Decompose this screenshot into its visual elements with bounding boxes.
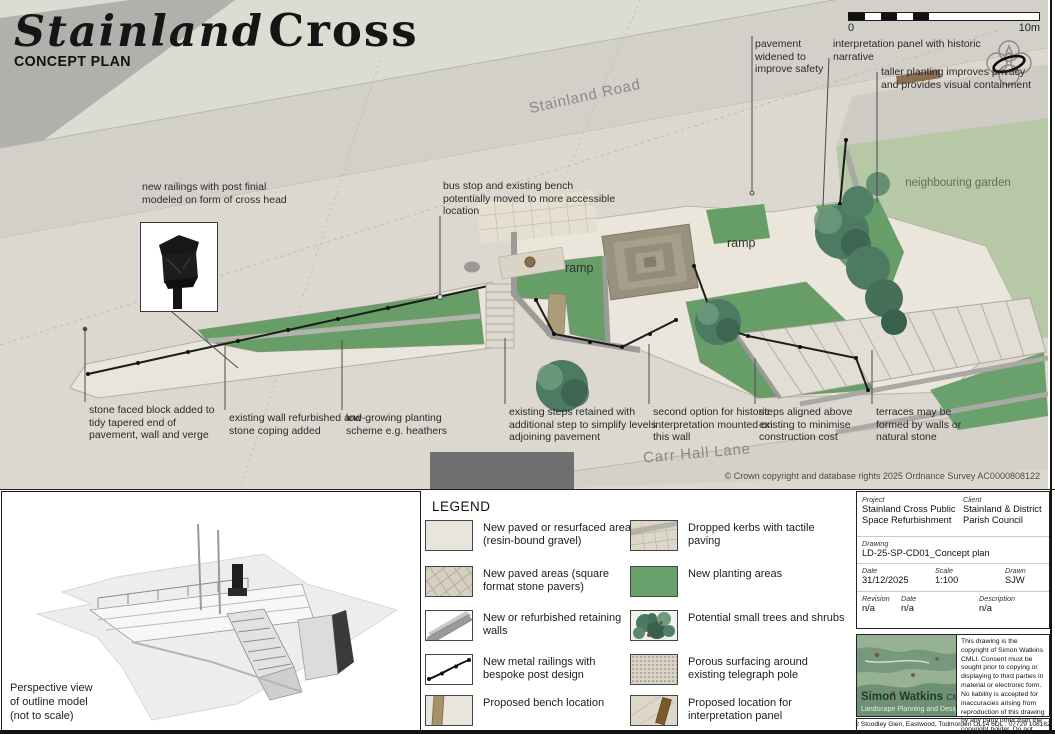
dropped-kerb-swatch: [630, 520, 678, 551]
neighbouring-garden-label: neighbouring garden: [903, 176, 1013, 190]
scale-label: Scale: [935, 566, 995, 575]
annotation-steps-aligned: steps aligned above existing to minimise…: [759, 406, 881, 444]
firm-tagline: Landscape Planning and Design: [861, 706, 957, 713]
drawn-value: SJW: [1005, 575, 1047, 586]
annotation-bus-stop: bus stop and existing bench potentially …: [443, 180, 621, 218]
bench-swatch: [425, 695, 473, 726]
date-label: Date: [862, 566, 930, 575]
resin-gravel-swatch: [425, 520, 473, 551]
project-value: Stainland Cross Public Space Refurbishme…: [862, 504, 962, 526]
firm-name: Simon Watkins CMLI: [861, 691, 957, 703]
post-finial-image: [140, 222, 218, 312]
perspective-view-panel: Perspective view of outline model (not t…: [1, 491, 421, 731]
firm-box: Simon Watkins CMLI Landscape Planning an…: [856, 634, 1050, 717]
legend-item-porous-surfacing: Porous surfacing around existing telegra…: [630, 654, 845, 685]
cross-monument-base: [602, 224, 698, 300]
client-value: Stainland & District Parish Council: [963, 504, 1048, 526]
project-label: Project: [862, 495, 962, 504]
firm-copyright-text: This drawing is the copyright of Simon W…: [957, 635, 1049, 716]
planting-swatch: [630, 566, 678, 597]
drawing-value: LD-25-SP-CD01_Concept plan: [862, 548, 1047, 559]
scale-value: 1:100: [935, 575, 995, 586]
annotation-interpretation-panel: interpretation panel with historic narra…: [833, 38, 983, 63]
porous-swatch: [630, 654, 678, 685]
firm-logo: Simon Watkins CMLI Landscape Planning an…: [857, 635, 957, 716]
legend-heading: LEGEND: [432, 499, 491, 514]
revision-label: Revision: [862, 594, 898, 603]
sheet-border-bottom: [0, 730, 1055, 734]
scale-start-label: 0: [848, 22, 854, 34]
legend-item-retaining-walls: New or refurbished retaining walls: [425, 610, 640, 641]
drawing-label: Drawing: [862, 539, 1047, 548]
drawing-sheet: Stainland Cross CONCEPT PLAN 0 10m: [0, 0, 1055, 734]
crown-copyright-note: © Crown copyright and database rights 20…: [725, 471, 1040, 481]
legend-item-planting: New planting areas: [630, 566, 845, 597]
sheet-bottom-section: Perspective view of outline model (not t…: [0, 489, 1055, 732]
existing-steps: [486, 284, 514, 348]
ramp-label-east: ramp: [727, 236, 755, 250]
firm-cmli: CMLI: [946, 692, 957, 702]
trees-swatch: [630, 610, 678, 641]
bus-stop-marker: [464, 262, 480, 273]
interpretation-panel-swatch: [630, 695, 678, 726]
description-value: n/a: [979, 603, 1047, 614]
title-block: Project Stainland Cross Public Space Ref…: [856, 491, 1050, 629]
annotation-pavement-widened: pavement widened to improve safety: [755, 38, 827, 76]
sheet-border-right: [1050, 0, 1052, 734]
annotation-existing-steps: existing steps retained with additional …: [509, 406, 667, 444]
client-label: Client: [963, 495, 1048, 504]
annotation-terraces: terraces may be formed by walls or natur…: [876, 406, 984, 444]
legend-item-bench: Proposed bench location: [425, 695, 640, 726]
concept-plan-area: Stainland Cross CONCEPT PLAN 0 10m: [0, 0, 1048, 490]
date-value: 31/12/2025: [862, 575, 930, 586]
annotation-taller-planting: taller planting improves privacy and pro…: [881, 66, 1031, 91]
stone-pavers-swatch: [425, 566, 473, 597]
legend-item-interpretation-panel: Proposed location for interpretation pan…: [630, 695, 845, 726]
metal-railings-swatch: [425, 654, 473, 685]
building-footprint: [430, 452, 574, 490]
revision-value: n/a: [862, 603, 898, 614]
scale-end-label: 10m: [1019, 22, 1040, 34]
perspective-caption: Perspective view of outline model (not t…: [10, 682, 93, 723]
annotation-stone-block: stone faced block added to tidy tapered …: [89, 404, 227, 442]
legend-item-metal-railings: New metal railings with bespoke post des…: [425, 654, 640, 685]
legend-item-resin-gravel: New paved or resurfaced areas (resin-bou…: [425, 520, 640, 551]
legend-item-stone-pavers: New paved areas (square format stone pav…: [425, 566, 640, 597]
legend-item-small-trees: Potential small trees and shrubs: [630, 610, 845, 641]
title-serif-part: Cross: [268, 4, 418, 57]
drawing-title: Stainland Cross CONCEPT PLAN: [14, 4, 419, 70]
scale-bar: 0 10m: [848, 12, 1040, 34]
ramp-label-west: ramp: [565, 261, 593, 275]
title-script-part: Stainland: [14, 7, 264, 57]
retaining-wall-swatch: [425, 610, 473, 641]
description-label: Description: [979, 594, 1047, 603]
revision-date-value: n/a: [901, 603, 937, 614]
annotation-new-railings: new railings with post finial modeled on…: [142, 181, 300, 206]
drawn-label: Drawn: [1005, 566, 1047, 575]
annotation-low-planting: low-growing planting scheme e.g. heather…: [346, 412, 474, 437]
title-subtitle: CONCEPT PLAN: [14, 53, 398, 70]
revision-date-label: Date: [901, 594, 937, 603]
legend-item-dropped-kerbs: Dropped kerbs with tactile paving: [630, 520, 845, 551]
telegraph-pole: [525, 257, 535, 267]
